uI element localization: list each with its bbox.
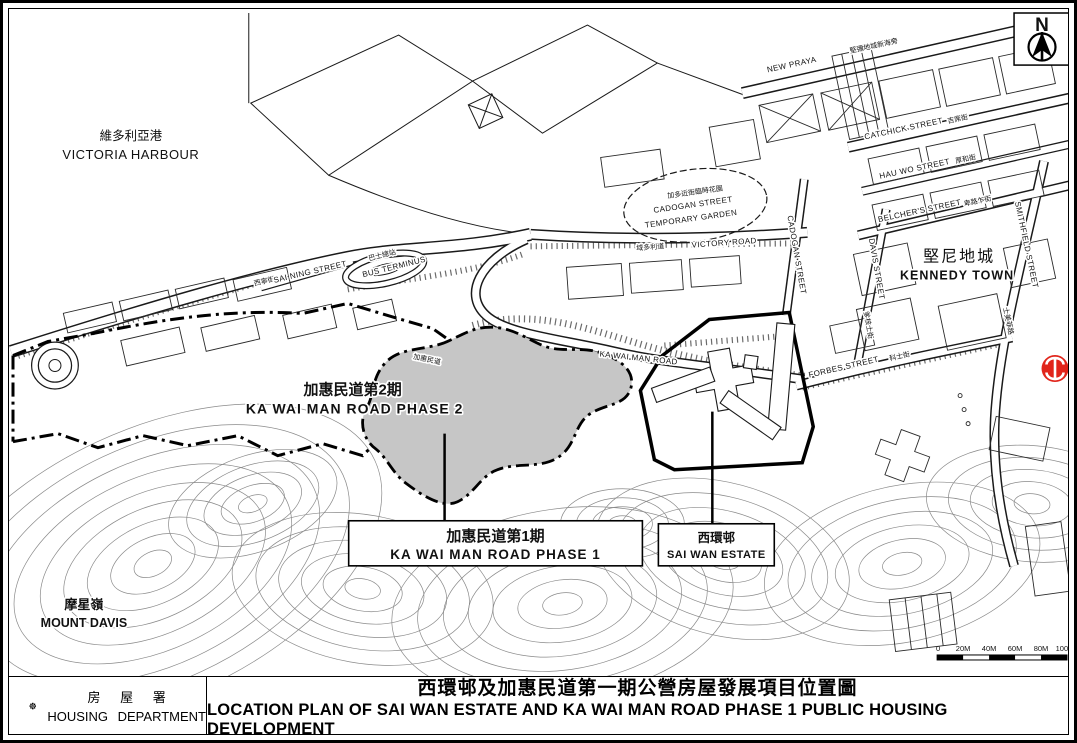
scale-label-40: 40M (982, 644, 997, 653)
scale-label-0: 0 (936, 644, 940, 653)
sai-wan-label-en: SAI WAN ESTATE (667, 549, 766, 561)
phase1-label-box: 加惠民道第1期 KA WAI MAN ROAD PHASE 1 (349, 521, 643, 566)
mtr-station-icon (1042, 355, 1068, 382)
street-new-praya-cn: 堅彌地城新海旁 (849, 36, 899, 55)
department-cell: 房 屋 署 HOUSING DEPARTMENT (9, 677, 207, 734)
plan-title-en: LOCATION PLAN OF SAI WAN ESTATE AND KA W… (207, 701, 1068, 739)
sai-wan-label-cn: 西環邨 (698, 530, 736, 545)
phase1-label-cn: 加惠民道第1期 (445, 527, 544, 545)
southeast-structures (870, 394, 1068, 652)
phase1-label-en: KA WAI MAN ROAD PHASE 1 (390, 547, 601, 562)
phase2-label-cn: 加惠民道第2期 (303, 381, 402, 399)
sai-wan-estate-buildings (651, 323, 794, 440)
map-frame: 加惠民道第1期 KA WAI MAN ROAD PHASE 1 西環邨 SAI … (8, 8, 1069, 735)
map-area: 加惠民道第1期 KA WAI MAN ROAD PHASE 1 西環邨 SAI … (9, 9, 1068, 676)
scale-label-60: 60M (1008, 644, 1023, 653)
department-name-en: HOUSING DEPARTMENT (47, 709, 206, 724)
plan-title-cn: 西環邨及加惠民道第一期公營房屋發展項目位置圖 (417, 673, 857, 700)
scale-label-20: 20M (956, 644, 971, 653)
scale-bar: 0 20M 40M 60M 80M 100M (936, 644, 1068, 660)
kennedy-town-label-cn: 堅尼地城 (923, 247, 995, 265)
scale-label-100: 100M (1056, 644, 1068, 653)
title-cell: 西環邨及加惠民道第一期公營房屋發展項目位置圖 LOCATION PLAN OF … (207, 677, 1068, 734)
department-name: 房 屋 署 HOUSING DEPARTMENT (47, 687, 206, 724)
victoria-harbour-label-cn: 維多利亞港 (100, 129, 163, 143)
housing-department-logo-icon (29, 683, 36, 729)
department-name-cn: 房 屋 署 (88, 687, 174, 706)
victoria-harbour-label-en: VICTORIA HARBOUR (62, 147, 199, 162)
pier-outlines (249, 13, 745, 234)
loop-road (35, 346, 75, 386)
north-arrow: N (1014, 13, 1068, 65)
sai-wan-label-box: 西環邨 SAI WAN ESTATE (658, 524, 774, 566)
phase2-label-en: KA WAI MAN ROAD PHASE 2 (246, 401, 463, 417)
contours-mid-west (154, 428, 352, 579)
street-new-praya: NEW PRAYA (766, 55, 817, 74)
title-block: 房 屋 署 HOUSING DEPARTMENT 西環邨及加惠民道第一期公營房屋… (9, 676, 1068, 734)
kennedy-town-label-en: KENNEDY TOWN (900, 268, 1014, 282)
scale-label-80: 80M (1034, 644, 1049, 653)
map-canvas: 加惠民道第1期 KA WAI MAN ROAD PHASE 1 西環邨 SAI … (9, 9, 1068, 676)
mount-davis-label-en: MOUNT DAVIS (41, 616, 127, 630)
mount-davis-label-cn: 摩星嶺 (64, 597, 103, 612)
location-plan-page: 加惠民道第1期 KA WAI MAN ROAD PHASE 1 西環邨 SAI … (0, 0, 1077, 743)
